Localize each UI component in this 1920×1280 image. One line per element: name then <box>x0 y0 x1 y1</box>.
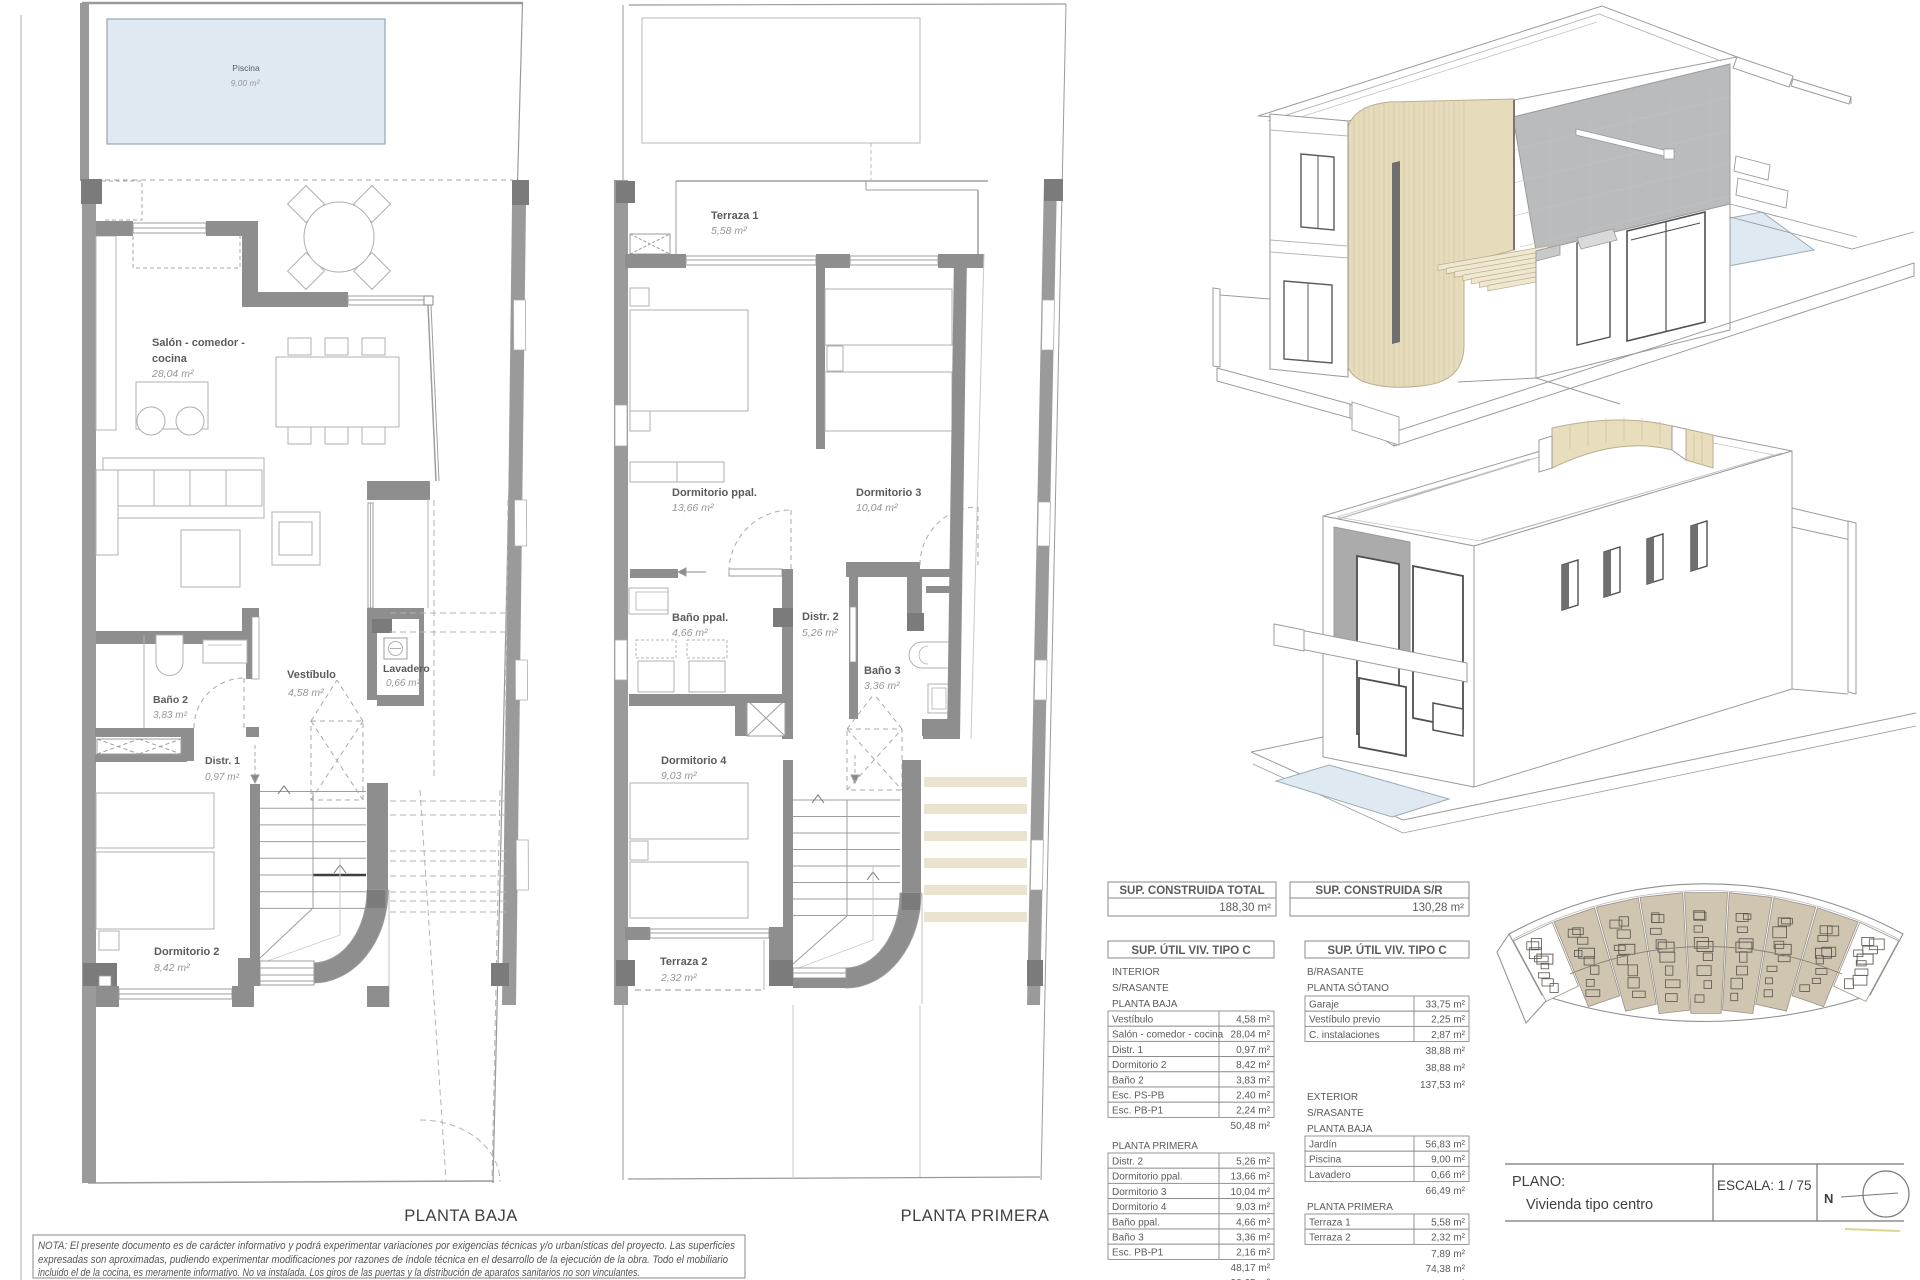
svg-text:Dormitorio 3: Dormitorio 3 <box>1112 1187 1167 1198</box>
svg-text:9,03 m²: 9,03 m² <box>1236 1202 1271 1213</box>
svg-text:Distr. 1: Distr. 1 <box>205 755 240 767</box>
svg-text:PLANTA PRIMERA: PLANTA PRIMERA <box>1307 1202 1393 1213</box>
svg-text:Baño 2: Baño 2 <box>153 694 188 706</box>
svg-text:Dormitorio ppal.: Dormitorio ppal. <box>672 487 757 499</box>
svg-text:Esc. PB-P1: Esc. PB-P1 <box>1112 1248 1164 1259</box>
svg-text:Baño ppal.: Baño ppal. <box>672 612 728 624</box>
svg-text:Piscina: Piscina <box>1309 1155 1342 1166</box>
svg-text:Baño 2: Baño 2 <box>1112 1075 1144 1086</box>
svg-text:NOTA: El presente documento es: NOTA: El presente documento es de caráct… <box>38 1240 735 1252</box>
svg-text:Jardín: Jardín <box>1309 1140 1337 1151</box>
svg-text:Terraza 1: Terraza 1 <box>711 210 759 222</box>
svg-text:2,25 m²: 2,25 m² <box>1431 1015 1466 1026</box>
svg-text:PLANTA BAJA: PLANTA BAJA <box>1112 999 1178 1010</box>
svg-text:S/RASANTE: S/RASANTE <box>1112 983 1169 994</box>
svg-text:cocina: cocina <box>152 353 188 365</box>
svg-text:Dormitorio 4: Dormitorio 4 <box>1112 1202 1167 1213</box>
svg-text:2,40 m²: 2,40 m² <box>1236 1091 1271 1102</box>
svg-text:9,00 m²: 9,00 m² <box>231 78 261 88</box>
svg-text:74,38 m²: 74,38 m² <box>1426 1264 1466 1275</box>
svg-text:7,89 m²: 7,89 m² <box>1431 1249 1466 1260</box>
svg-text:INTERIOR: INTERIOR <box>1112 967 1160 978</box>
svg-text:28,04 m²: 28,04 m² <box>151 368 194 380</box>
svg-text:Terraza 1: Terraza 1 <box>1309 1218 1351 1229</box>
svg-text:10,04 m²: 10,04 m² <box>1231 1187 1271 1198</box>
svg-text:S/RASANTE: S/RASANTE <box>1307 1108 1364 1119</box>
svg-text:3,36 m²: 3,36 m² <box>864 680 900 692</box>
svg-text:0,66 m²: 0,66 m² <box>386 678 421 689</box>
svg-text:5,58 m²: 5,58 m² <box>711 225 747 237</box>
svg-text:33,75 m²: 33,75 m² <box>1426 1000 1466 1011</box>
svg-text:B/RASANTE: B/RASANTE <box>1307 967 1364 978</box>
svg-text:0,97 m²: 0,97 m² <box>1236 1045 1271 1056</box>
svg-text:Baño 3: Baño 3 <box>864 665 901 677</box>
svg-text:4,66 m²: 4,66 m² <box>1236 1217 1271 1228</box>
svg-text:Terraza 2: Terraza 2 <box>1309 1233 1351 1244</box>
svg-text:SUP. ÚTIL VIV. TIPO C: SUP. ÚTIL VIV. TIPO C <box>1131 944 1250 957</box>
svg-text:Lavadero: Lavadero <box>383 663 430 675</box>
svg-text:Vivienda tipo centro: Vivienda tipo centro <box>1526 1197 1653 1213</box>
svg-text:Piscina: Piscina <box>232 63 260 73</box>
svg-text:2,32 m²: 2,32 m² <box>660 972 697 984</box>
svg-text:Dormitorio 2: Dormitorio 2 <box>1112 1060 1167 1071</box>
svg-text:5,58 m²: 5,58 m² <box>1431 1218 1466 1229</box>
svg-text:66,49 m²: 66,49 m² <box>1426 1186 1466 1197</box>
svg-text:PLANO:: PLANO: <box>1512 1174 1565 1190</box>
svg-text:Lavadero: Lavadero <box>1309 1170 1351 1181</box>
svg-text:38,88 m²: 38,88 m² <box>1426 1046 1466 1057</box>
svg-text:28,04 m²: 28,04 m² <box>1231 1030 1271 1041</box>
svg-text:Vestíbulo: Vestíbulo <box>1112 1015 1154 1026</box>
svg-text:Salón - comedor -: Salón - comedor - <box>152 337 245 349</box>
svg-text:Salón - comedor - cocina: Salón - comedor - cocina <box>1112 1030 1224 1041</box>
svg-text:Distr. 1: Distr. 1 <box>1112 1045 1144 1056</box>
svg-text:Baño 3: Baño 3 <box>1112 1233 1144 1244</box>
svg-text:Dormitorio ppal.: Dormitorio ppal. <box>1112 1172 1183 1183</box>
svg-text:2,16 m²: 2,16 m² <box>1236 1248 1271 1259</box>
svg-text:PLANTA BAJA: PLANTA BAJA <box>1307 1124 1373 1135</box>
svg-text:2,32 m²: 2,32 m² <box>1431 1233 1466 1244</box>
svg-text:8,42 m²: 8,42 m² <box>1236 1060 1271 1071</box>
svg-text:4,58 m²: 4,58 m² <box>1236 1015 1271 1026</box>
svg-text:3,36 m²: 3,36 m² <box>1236 1233 1271 1244</box>
svg-text:Baño ppal.: Baño ppal. <box>1112 1217 1160 1228</box>
svg-text:4,58 m²: 4,58 m² <box>288 687 324 699</box>
svg-text:Terraza 2: Terraza 2 <box>660 956 708 968</box>
svg-text:2,87 m²: 2,87 m² <box>1431 1030 1466 1041</box>
svg-text:SUP. ÚTIL VIV. TIPO C: SUP. ÚTIL VIV. TIPO C <box>1327 944 1446 957</box>
svg-text:0,97 m²: 0,97 m² <box>205 772 240 783</box>
svg-text:Garaje: Garaje <box>1309 1000 1339 1011</box>
svg-text:incluido el de la cocina, es m: incluido el de la cocina, es meramente i… <box>38 1267 640 1279</box>
svg-text:Vestíbulo: Vestíbulo <box>287 669 336 681</box>
svg-text:9,03 m²: 9,03 m² <box>661 770 697 782</box>
svg-text:Distr. 2: Distr. 2 <box>1112 1157 1144 1168</box>
svg-text:Dormitorio 3: Dormitorio 3 <box>856 487 921 499</box>
svg-text:EXTERIOR: EXTERIOR <box>1307 1092 1358 1103</box>
svg-text:Distr. 2: Distr. 2 <box>802 611 839 623</box>
svg-text:Esc. PS-PB: Esc. PS-PB <box>1112 1091 1165 1102</box>
svg-text:50,48 m²: 50,48 m² <box>1231 1121 1271 1132</box>
svg-text:PLANTA BAJA: PLANTA BAJA <box>404 1207 517 1225</box>
svg-text:expresadas son aproximadas, pu: expresadas son aproximadas, pudiendo exp… <box>38 1254 728 1266</box>
svg-text:3,83 m²: 3,83 m² <box>153 710 188 721</box>
svg-text:5,26 m²: 5,26 m² <box>802 627 838 639</box>
svg-text:9,00 m²: 9,00 m² <box>1431 1155 1466 1166</box>
svg-text:130,28 m²: 130,28 m² <box>1412 902 1464 914</box>
svg-text:8,42 m²: 8,42 m² <box>154 962 190 974</box>
svg-text:13,66 m²: 13,66 m² <box>672 502 714 514</box>
svg-text:4,66 m²: 4,66 m² <box>672 627 708 639</box>
svg-text:38,88 m²: 38,88 m² <box>1426 1063 1466 1074</box>
svg-text:PLANTA SÓTANO: PLANTA SÓTANO <box>1307 981 1389 994</box>
svg-text:3,83 m²: 3,83 m² <box>1236 1075 1271 1086</box>
svg-text:Dormitorio 2: Dormitorio 2 <box>154 946 219 958</box>
svg-text:48,17 m²: 48,17 m² <box>1231 1263 1271 1274</box>
svg-text:N: N <box>1824 1191 1833 1206</box>
svg-text:0,66 m²: 0,66 m² <box>1431 1170 1466 1181</box>
svg-text:10,04 m²: 10,04 m² <box>856 502 898 514</box>
svg-text:188,30 m²: 188,30 m² <box>1219 902 1271 914</box>
svg-text:137,53 m²: 137,53 m² <box>1420 1080 1466 1091</box>
svg-text:Vestíbulo previo: Vestíbulo previo <box>1309 1015 1381 1026</box>
svg-text:56,83 m²: 56,83 m² <box>1426 1140 1466 1151</box>
svg-text:C. instalaciones: C. instalaciones <box>1309 1030 1380 1041</box>
svg-text:13,66 m²: 13,66 m² <box>1231 1172 1271 1183</box>
svg-text:ESCALA: 1 / 75: ESCALA: 1 / 75 <box>1717 1178 1812 1193</box>
svg-text:SUP. CONSTRUIDA TOTAL: SUP. CONSTRUIDA TOTAL <box>1119 885 1264 897</box>
svg-text:Dormitorio 4: Dormitorio 4 <box>661 755 727 767</box>
svg-text:2,24 m²: 2,24 m² <box>1236 1106 1271 1117</box>
svg-text:SUP. CONSTRUIDA S/R: SUP. CONSTRUIDA S/R <box>1315 885 1443 897</box>
svg-text:PLANTA PRIMERA: PLANTA PRIMERA <box>1112 1141 1198 1152</box>
svg-text:Esc. PB-P1: Esc. PB-P1 <box>1112 1106 1164 1117</box>
svg-text:5,26 m²: 5,26 m² <box>1236 1157 1271 1168</box>
svg-text:PLANTA PRIMERA: PLANTA PRIMERA <box>901 1207 1050 1225</box>
